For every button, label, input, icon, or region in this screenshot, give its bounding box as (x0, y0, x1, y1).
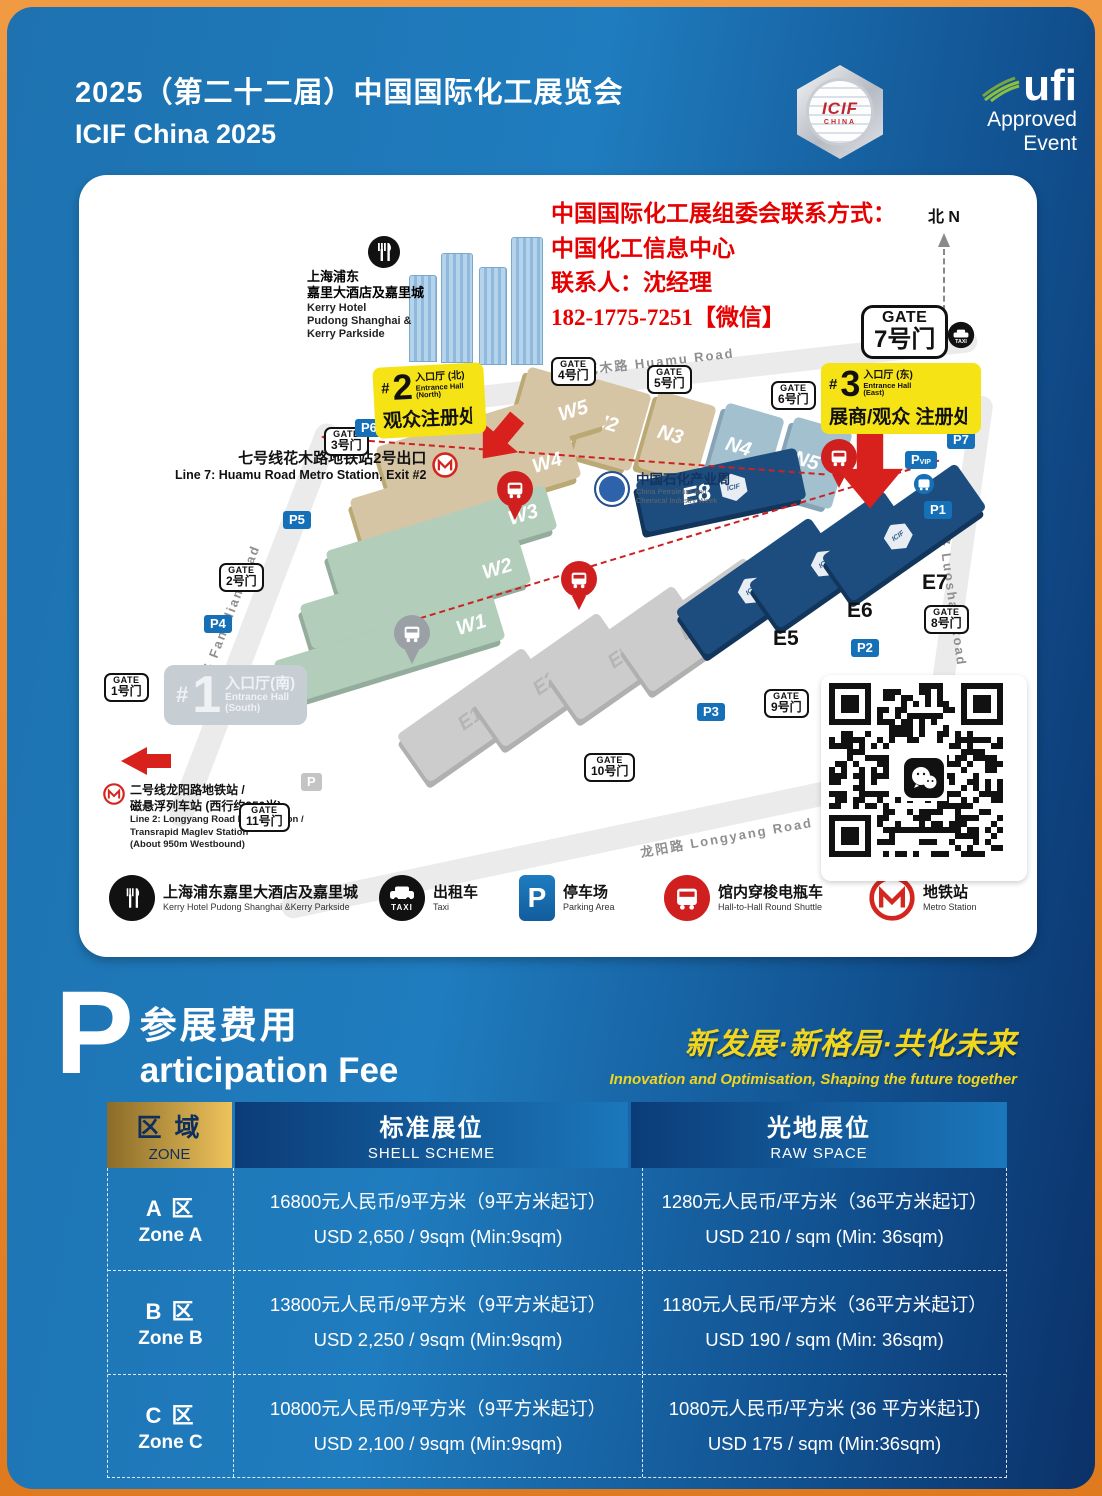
contact-line1: 中国国际化工展组委会联系方式： (551, 197, 896, 232)
zone-b-raw-price: 1180元人民币/平方米（36平方米起订）USD 190 / sqm (Min:… (643, 1271, 1006, 1373)
icif-badge: ICIF (880, 518, 917, 556)
wechat-qr-code (821, 675, 1027, 881)
hall-e5-label: E5 (773, 627, 799, 651)
legend-metro: 地铁站Metro Station (869, 875, 977, 921)
zone-b-shell-price: 13800元人民币/9平方米（9平方米起订）USD 2,250 / 9sqm (… (234, 1271, 643, 1373)
fee-title-cn: 参展费用 (140, 995, 399, 1049)
entrance-2-callout: #2 入口厅 (北)Entrance Hall(North) 观众注册处 (372, 362, 487, 439)
hotel-tower (441, 253, 473, 363)
line7-en: Line 7: Huamu Road Metro Station, Exit #… (175, 468, 426, 482)
zone-c-raw-price: 1080元人民币/平方米 (36 平方米起订)USD 175 / sqm (Mi… (643, 1375, 1006, 1477)
parking-p2: P2 (851, 639, 879, 657)
pcw-en2: Chemical Industry Week (636, 496, 731, 505)
ufi-event: Event (912, 132, 1077, 156)
zone-c-shell-price: 10800元人民币/9平方米（9平方米起订）USD 2,100 / 9sqm (… (234, 1375, 643, 1477)
fee-table-body: A 区Zone A 16800元人民币/9平方米（9平方米起订）USD 2,65… (107, 1168, 1007, 1478)
contact-line2: 中国化工信息中心 (551, 232, 896, 267)
shuttle-bus-icon (664, 875, 710, 921)
ufi-logo: ufi Approved Event (912, 67, 1077, 156)
ufi-approved: Approved (912, 108, 1077, 132)
entrance-3-arrow (837, 431, 903, 509)
icif-logo-sub: CHINA (824, 119, 856, 126)
zone-a-shell-price: 16800元人民币/9平方米（9平方米起订）USD 2,650 / 9sqm (… (234, 1168, 643, 1270)
hotel-en1: Kerry Hotel (307, 302, 424, 315)
venue-map: 花木路 Huamu Road 芳甸路 Fangdian Road 罗山路 Luo… (79, 175, 1037, 957)
taxi-icon: TAXI (947, 321, 975, 349)
table-row-zone-b: B 区Zone B 13800元人民币/9平方米（9平方米起订）USD 2,25… (108, 1271, 1006, 1374)
gate-2: GATE2号门 (219, 563, 264, 592)
restaurant-icon (109, 875, 155, 921)
gate-1: GATE1号门 (104, 673, 149, 702)
gate-6: GATE6号门 (771, 381, 816, 410)
page-title: 2025（第二十二届）中国国际化工展览会 ICIF China 2025 (75, 69, 624, 150)
zone-b-cell: B 区Zone B (108, 1271, 234, 1373)
compass-arrow-icon (938, 227, 950, 247)
gate-9: GATE9号门 (764, 689, 809, 718)
entrance-3-callout: #3 入口厅 (东)Entrance Hall(East) 展商/观众 注册处 (821, 363, 981, 434)
pcw-en1: China Petroleum and (636, 487, 731, 496)
hotel-cn2: 嘉里大酒店及嘉里城 (307, 285, 424, 301)
parking-p1: P1 (924, 501, 952, 519)
metro-icon (869, 875, 915, 921)
shuttle-area-icon (913, 473, 935, 495)
contact-line4: 182-1775-7251【微信】 (551, 301, 896, 336)
kerry-hotel-note: 上海浦东 嘉里大酒店及嘉里城 Kerry Hotel Pudong Shangh… (307, 235, 424, 341)
metro-icon (103, 783, 125, 805)
fee-table-header: 区 域ZONE 标准展位SHELL SCHEME 光地展位RAW SPACE (107, 1102, 1007, 1168)
fee-table: 区 域ZONE 标准展位SHELL SCHEME 光地展位RAW SPACE A… (107, 1102, 1007, 1478)
compass-label: 北 N (924, 203, 964, 227)
petrochem-week-logo: 中国石化产业周 China Petroleum and Chemical Ind… (594, 471, 731, 507)
restaurant-icon (367, 235, 424, 269)
compass-line (943, 249, 945, 311)
zone-c-cell: C 区Zone C (108, 1375, 234, 1477)
fee-big-p: P (55, 985, 134, 1091)
contact-line3: 联系人：沈经理 (551, 266, 896, 301)
organizer-contact: 中国国际化工展组委会联系方式： 中国化工信息中心 联系人：沈经理 182-177… (551, 197, 896, 335)
gate-5: GATE5号门 (647, 365, 692, 394)
map-legend: 上海浦东嘉里大酒店及嘉里城Kerry Hotel Pudong Shanghai… (109, 875, 1009, 921)
west-direction-arrow (107, 747, 147, 775)
shuttle-stop-pin-gray (394, 615, 430, 651)
parking-icon: P (519, 875, 555, 921)
shuttle-stop-pin (561, 561, 597, 597)
table-row-zone-c: C 区Zone C 10800元人民币/9平方米（9平方米起订）USD 2,10… (108, 1375, 1006, 1477)
parking-p4: P4 (204, 615, 232, 633)
icif-globe-icon: ICIF CHINA (806, 78, 874, 146)
ufi-swoosh-icon (981, 74, 1023, 104)
hall-e7-label: E7 (922, 571, 948, 595)
wechat-icon (901, 755, 947, 801)
entrance-1-callout: #1 入口厅(南)Entrance Hall(South) (164, 665, 307, 725)
line7-note: 七号线花木路地铁站2号出口 Line 7: Huamu Road Metro S… (175, 447, 458, 482)
hotel-en3: Kerry Parkside (307, 328, 424, 341)
icif-logo-text: ICIF (822, 99, 858, 119)
metro-icon (432, 452, 458, 478)
parking-p3: P3 (697, 703, 725, 721)
zone-header: 区 域ZONE (107, 1102, 232, 1168)
legend-shuttle: 馆内穿梭电瓶车Hall-to-Hall Round Shuttle (664, 875, 869, 921)
gate-10: GATE10号门 (584, 753, 635, 782)
line2-cn1: 二号线龙阳路地铁站 / (130, 783, 304, 799)
shuttle-stop-pin (497, 471, 533, 507)
slogan-cn: 新发展·新格局·共化未来 (610, 1019, 1018, 1063)
line2-en3: (About 950m Westbound) (130, 839, 304, 851)
title-cn: 2025（第二十二届）中国国际化工展览会 (75, 69, 624, 111)
icif-logo: ICIF CHINA (797, 65, 883, 159)
hall-e6-label: E6 (847, 599, 873, 623)
parking-gray: P (301, 773, 322, 791)
fee-title-en: articipation Fee (140, 1051, 399, 1091)
hotel-tower (511, 237, 543, 365)
parking-vip: PVIP (905, 451, 937, 469)
pcw-icon (594, 471, 630, 507)
taxi-icon: TAXI (379, 875, 425, 921)
legend-taxi: TAXI 出租车Taxi (379, 875, 519, 921)
slogan: 新发展·新格局·共化未来 Innovation and Optimisation… (610, 1019, 1018, 1088)
hotel-tower (479, 267, 507, 365)
fee-heading: P 参展费用 articipation Fee (55, 985, 398, 1091)
hotel-cn1: 上海浦东 (307, 269, 424, 285)
gate-8: GATE8号门 (924, 605, 969, 634)
slogan-en: Innovation and Optimisation, Shaping the… (610, 1071, 1018, 1088)
table-row-zone-a: A 区Zone A 16800元人民币/9平方米（9平方米起订）USD 2,65… (108, 1168, 1006, 1271)
legend-parking: P 停车场Parking Area (519, 875, 664, 921)
zone-a-raw-price: 1280元人民币/平方米（36平方米起订）USD 210 / sqm (Min:… (643, 1168, 1006, 1270)
raw-space-header: 光地展位RAW SPACE (631, 1102, 1007, 1168)
title-en: ICIF China 2025 (75, 119, 624, 150)
line7-cn: 七号线花木路地铁站2号出口 (175, 447, 426, 468)
gate-11: GATE11号门 (239, 803, 290, 832)
ufi-text: ufi (1023, 67, 1077, 104)
zone-a-cell: A 区Zone A (108, 1168, 234, 1270)
shell-scheme-header: 标准展位SHELL SCHEME (235, 1102, 628, 1168)
svg-text:TAXI: TAXI (955, 339, 967, 345)
poster-page: 2025（第二十二届）中国国际化工展览会 ICIF China 2025 ICI… (7, 7, 1095, 1489)
legend-hotel: 上海浦东嘉里大酒店及嘉里城Kerry Hotel Pudong Shanghai… (109, 875, 379, 921)
parking-p5: P5 (283, 511, 311, 529)
gate-4: GATE4号门 (551, 357, 596, 386)
pcw-cn: 中国石化产业周 (636, 473, 731, 488)
hotel-en2: Pudong Shanghai & (307, 315, 424, 328)
